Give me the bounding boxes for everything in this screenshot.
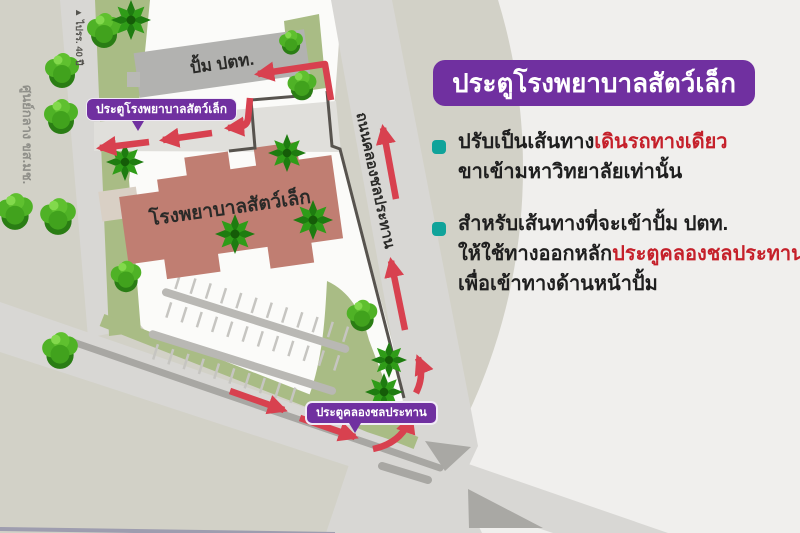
bullet-1-line-1: ปรับเป็นเส้นทางเดินรถทางเดียว <box>458 127 800 157</box>
panel-title: ประตูโรงพยาบาลสัตว์เล็ก <box>433 60 755 106</box>
bullet-square-icon <box>432 222 446 236</box>
bullet-2-line-3: เพื่อเข้าทางด้านหน้าปั้ม <box>458 269 800 299</box>
info-panel: ประตูโรงพยาบาลสัตว์เล็ก ปรับเป็นเส้นทางเ… <box>0 0 800 533</box>
bullet-1-text: ปรับเป็นเส้นทางเดินรถทางเดียว ขาเข้ามหาว… <box>458 127 800 187</box>
bullet-1-line-2: ขาเข้ามหาวิทยาลัยเท่านั้น <box>458 157 800 187</box>
bullet-square-icon <box>432 140 446 154</box>
bullet-2-text: สำหรับเส้นทางที่จะเข้าปั้ม ปตท. ให้ใช้ทา… <box>458 209 800 299</box>
bullet-2-line-1: สำหรับเส้นทางที่จะเข้าปั้ม ปตท. <box>458 209 800 239</box>
bullet-2-line-2: ให้ใช้ทางออกหลักประตูคลองชลประทาน <box>458 239 800 269</box>
infographic-page: ▲ ไปรร. 40 ปี ศูนย์กลาง ขส.มช. ปั้ม ปตท.… <box>0 0 800 533</box>
